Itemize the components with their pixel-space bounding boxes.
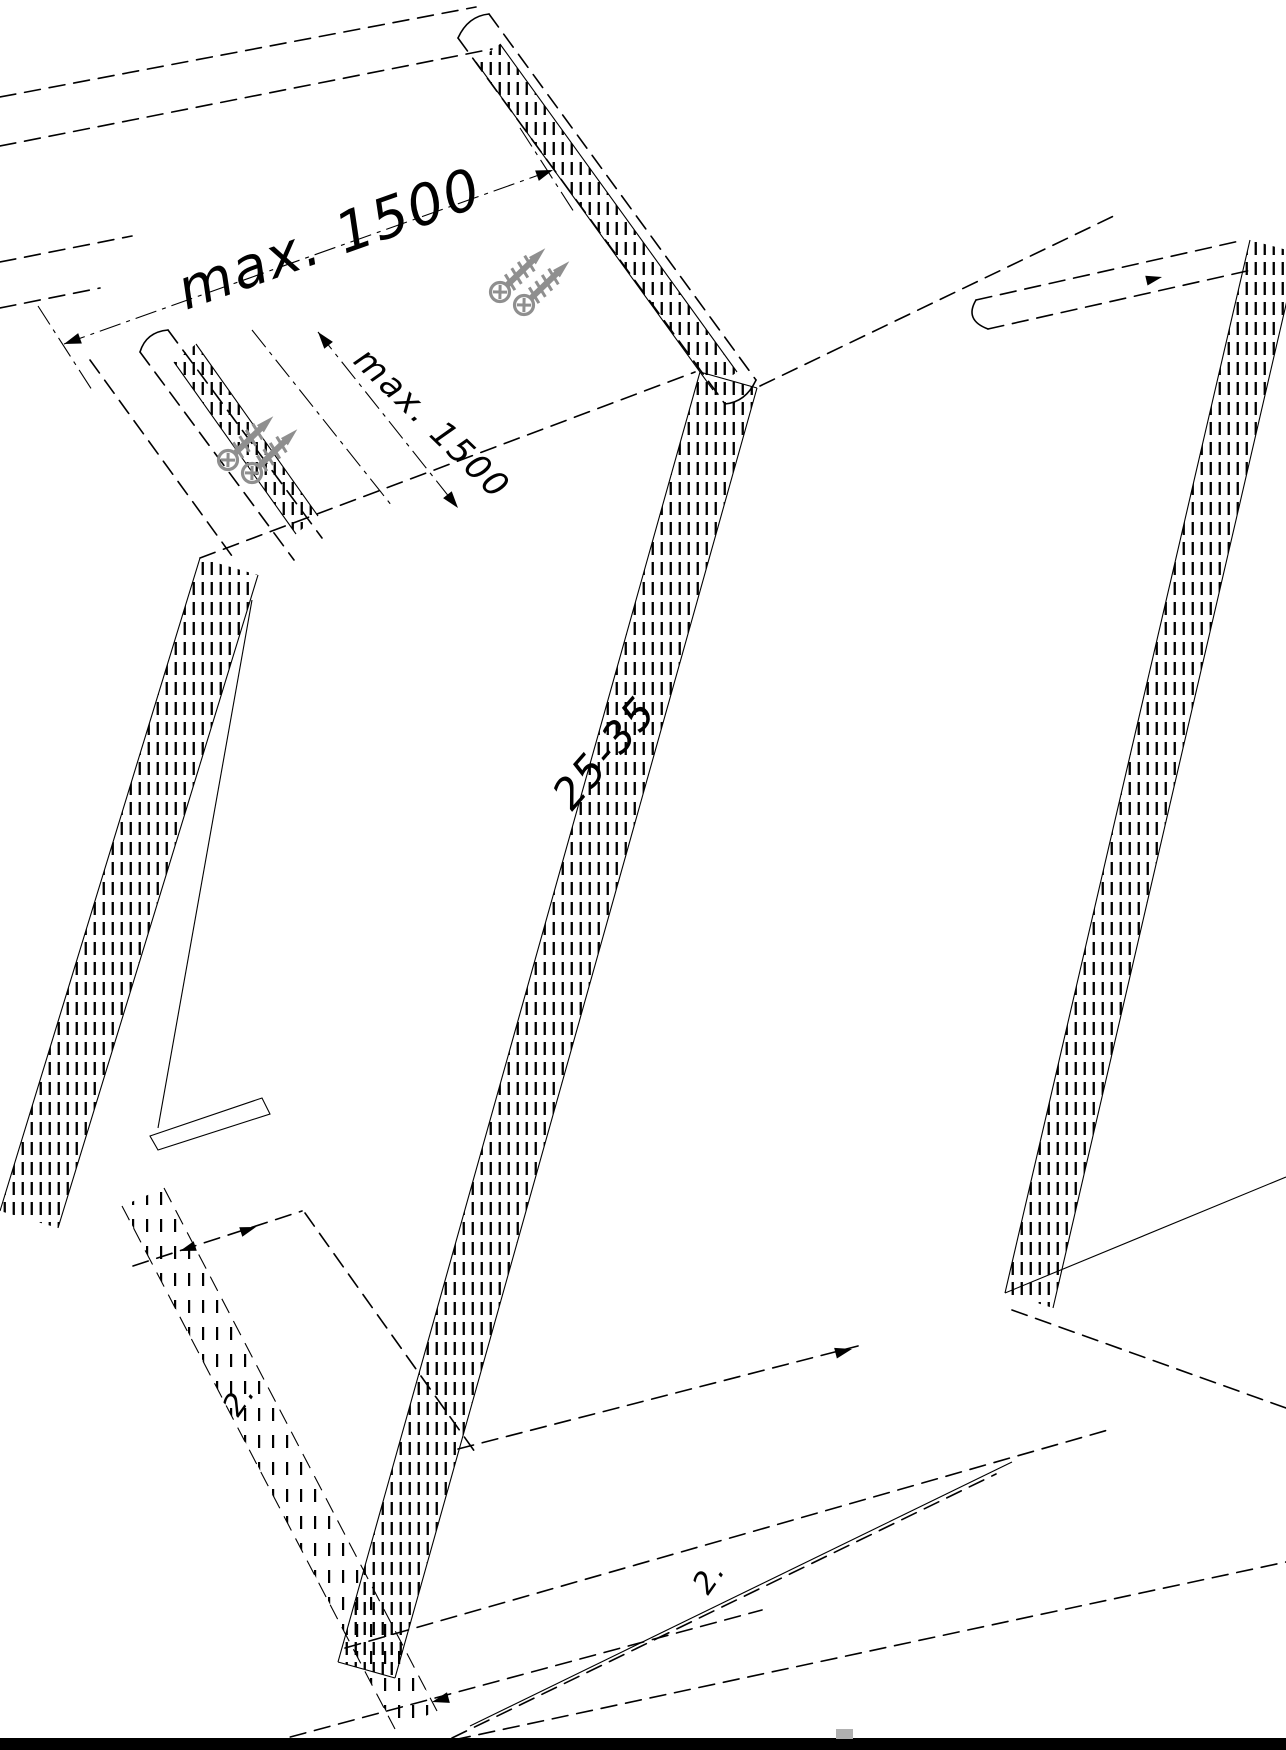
isometric-panel-installation-drawing: max. 1500 max. 1500 25- bbox=[0, 0, 1286, 1750]
bottom-bar bbox=[0, 1738, 1286, 1750]
gray-chip bbox=[836, 1729, 853, 1739]
arrowhead-icon bbox=[443, 491, 462, 511]
arrowhead-icon bbox=[1145, 272, 1163, 285]
arrowhead-icon bbox=[62, 333, 82, 349]
arrowhead-icon bbox=[314, 329, 333, 349]
step-label-right: 2. bbox=[686, 1554, 733, 1601]
arrowhead-icon bbox=[239, 1222, 257, 1236]
technical-drawing-page: max. 1500 max. 1500 25- bbox=[0, 0, 1286, 1750]
panel-right bbox=[972, 240, 1286, 1408]
screw-pair-icon bbox=[487, 241, 576, 318]
dimension-top: max. 1500 bbox=[38, 128, 574, 390]
dimension-top-label: max. 1500 bbox=[169, 156, 491, 323]
batten-hatch-top bbox=[476, 44, 737, 390]
dimension-side-label: max. 1500 bbox=[346, 340, 518, 508]
arrowhead-icon bbox=[834, 1344, 853, 1359]
